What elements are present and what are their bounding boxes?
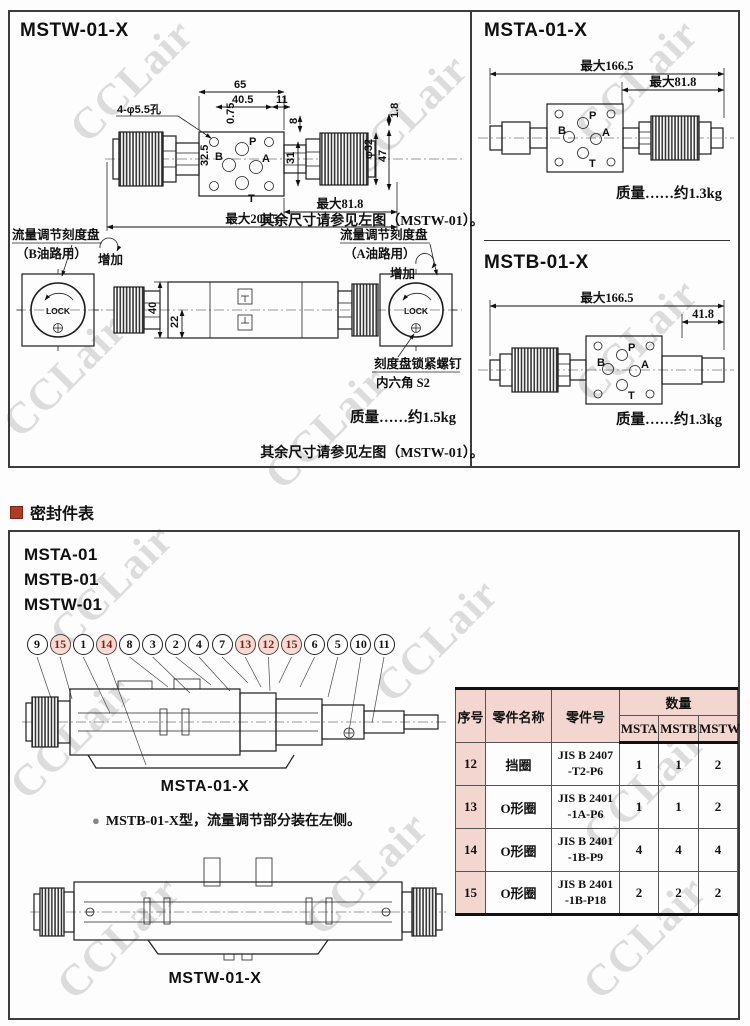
table-row: 14 O形圈 JIS B 2401 -1B-P9 4 4 4	[456, 829, 738, 872]
port-b-label: B	[597, 357, 605, 369]
mstb-title: MSTB-01-X	[484, 252, 589, 274]
mstb-weight: 质量……约1.3kg	[616, 408, 722, 429]
section-divider	[484, 240, 730, 241]
mstb-variant-note-text: MSTB-01-X型，流量调节部分装在左侧。	[106, 814, 361, 829]
catalog-page: CCLair CCLair CCLair CCLair CCLair CCLai…	[0, 0, 750, 1026]
cell-qty-msta: 2	[620, 872, 659, 915]
cell-qty-mstb: 1	[659, 786, 699, 829]
balloon: 12	[258, 634, 279, 655]
bullet-icon: ●	[92, 813, 100, 828]
dial-a-label-2: （A油路用）	[344, 246, 416, 261]
model-mstb: MSTB-01	[24, 567, 102, 592]
table-row: 12 挡圈 JIS B 2407 -T2-P6 1 1 2	[456, 743, 738, 786]
port-t-label: T	[248, 193, 255, 205]
port-a-label: A	[641, 359, 649, 371]
dim-32-5: 32.5	[199, 145, 211, 166]
mstw-section-label: MSTW-01-X	[65, 970, 365, 988]
col-header-msta: MSTA	[620, 716, 659, 743]
mstw-title: MSTW-01-X	[20, 20, 129, 42]
dimensions-panel: MSTW-01-X P A B T	[8, 10, 740, 468]
cell-name: O形圈	[486, 786, 552, 829]
cell-qty-msta: 4	[620, 829, 659, 872]
port-p-label: P	[628, 342, 635, 354]
cell-index: 15	[456, 872, 486, 915]
dim-max81-8: 最大81.8	[317, 196, 364, 211]
cell-name: O形圈	[486, 829, 552, 872]
port-t-label: T	[628, 390, 635, 402]
dim-11: 11	[276, 94, 288, 106]
balloon: 6	[304, 634, 325, 655]
increase-a-label: 增加	[390, 266, 415, 281]
balloon: 13	[235, 634, 256, 655]
model-msta: MSTA-01	[24, 542, 102, 567]
cell-part-no: JIS B 2401 -1B-P18	[552, 872, 620, 915]
dim-22: 22	[169, 316, 181, 328]
cell-name: O形圈	[486, 872, 552, 915]
lock-a-label: LOCK	[404, 306, 429, 316]
cell-qty-msta: 1	[620, 786, 659, 829]
col-header-mstw: MSTW	[699, 716, 738, 743]
dim-8: 8	[288, 118, 300, 124]
port-b-label: B	[558, 125, 566, 137]
dim-max81-8-a: 最大81.8	[650, 74, 697, 89]
balloon: 11	[374, 634, 395, 655]
model-mstw: MSTW-01	[24, 592, 102, 617]
dim-holes: 4-φ5.5孔	[117, 103, 161, 116]
port-p-label: P	[249, 136, 256, 148]
cell-part-no: JIS B 2407 -T2-P6	[552, 743, 620, 786]
seal-heading-text: 密封件表	[30, 500, 94, 524]
msta-weight: 质量……约1.3kg	[616, 182, 722, 203]
dim-1-8: 1.8	[389, 103, 401, 118]
balloon: 1	[73, 634, 94, 655]
dim-65: 65	[234, 79, 246, 91]
balloon: 7	[212, 634, 233, 655]
lock-b-label: LOCK	[46, 306, 71, 316]
col-header-qty: 数量	[620, 689, 738, 716]
increase-b-label: 增加	[98, 252, 123, 267]
port-a-label: A	[262, 153, 270, 165]
col-header-index: 序号	[456, 689, 486, 743]
dim-31: 31	[285, 152, 297, 164]
dim-40: 40	[147, 302, 159, 314]
seal-parts-panel: MSTA-01 MSTB-01 MSTW-01 9 15 1 14 8 3 2 …	[8, 530, 740, 1020]
mstw-weight: 质量……约1.5kg	[350, 408, 457, 426]
dim-0-75: 0.75	[225, 103, 237, 124]
port-p-label: P	[589, 110, 596, 122]
cell-name: 挡圈	[486, 743, 552, 786]
msta-drawing: 最大166.5 最大81.8 P B A T	[472, 46, 740, 178]
screw-note-1: 刻度盘锁紧螺钉	[374, 356, 462, 371]
balloon: 15	[50, 634, 71, 655]
cell-index: 13	[456, 786, 486, 829]
mstb-variant-note: ●MSTB-01-X型，流量调节部分装在左侧。	[92, 810, 361, 830]
cell-qty-msta: 1	[620, 743, 659, 786]
dim-max166-5: 最大166.5	[580, 290, 633, 305]
balloon: 8	[119, 634, 140, 655]
red-square-icon	[10, 506, 23, 519]
cell-qty-mstb: 2	[659, 872, 699, 915]
cell-qty-mstw: 2	[699, 743, 738, 786]
port-b-label: B	[215, 151, 223, 163]
model-list: MSTA-01 MSTB-01 MSTW-01	[24, 542, 102, 617]
dim-dia32: φ32	[363, 139, 375, 159]
mstb-refnote: 其余尺寸请参见左图（MSTW-01）。	[10, 442, 734, 462]
cell-qty-mstw: 4	[699, 829, 738, 872]
dial-b-label-2: （B油路用）	[16, 246, 87, 261]
cell-index: 14	[456, 829, 486, 872]
mstw-drawing: P A B T 65 40.5 11 0.75 4-φ5.5孔 8	[10, 12, 470, 466]
seal-parts-table: 序号 零件名称 零件号 数量 MSTA MSTB MSTW 12 挡圈 JIS …	[455, 687, 738, 916]
dim-max166-5: 最大166.5	[580, 58, 633, 73]
mstw-cross-section	[28, 854, 448, 974]
cell-qty-mstb: 1	[659, 743, 699, 786]
balloon: 14	[96, 634, 117, 655]
msta-title: MSTA-01-X	[484, 20, 587, 42]
port-t-label: T	[589, 158, 596, 170]
balloon: 9	[27, 634, 48, 655]
screw-note-2: 内六角 S2	[376, 375, 430, 390]
cell-index: 12	[456, 743, 486, 786]
port-a-label: A	[602, 127, 610, 139]
cell-qty-mstw: 2	[699, 872, 738, 915]
col-header-part: 零件号	[552, 689, 620, 743]
col-header-name: 零件名称	[486, 689, 552, 743]
col-header-mstb: MSTB	[659, 716, 699, 743]
msta-section-label: MSTA-01-X	[55, 778, 355, 796]
dim-41-8: 41.8	[692, 307, 714, 321]
table-row: 13 O形圈 JIS B 2401 -1A-P6 1 1 2	[456, 786, 738, 829]
cell-qty-mstw: 2	[699, 786, 738, 829]
balloon: 15	[281, 634, 302, 655]
cell-part-no: JIS B 2401 -1B-P9	[552, 829, 620, 872]
cell-qty-mstb: 4	[659, 829, 699, 872]
mstb-drawing: 最大166.5 41.8 P B A T	[472, 278, 740, 410]
table-row: 15 O形圈 JIS B 2401 -1B-P18 2 2 2	[456, 872, 738, 915]
seal-section-heading: 密封件表	[10, 500, 94, 524]
dim-47: 47	[377, 150, 389, 162]
cell-part-no: JIS B 2401 -1A-P6	[552, 786, 620, 829]
msta-refnote: 其余尺寸请参见左图（MSTW-01）。	[10, 210, 734, 230]
